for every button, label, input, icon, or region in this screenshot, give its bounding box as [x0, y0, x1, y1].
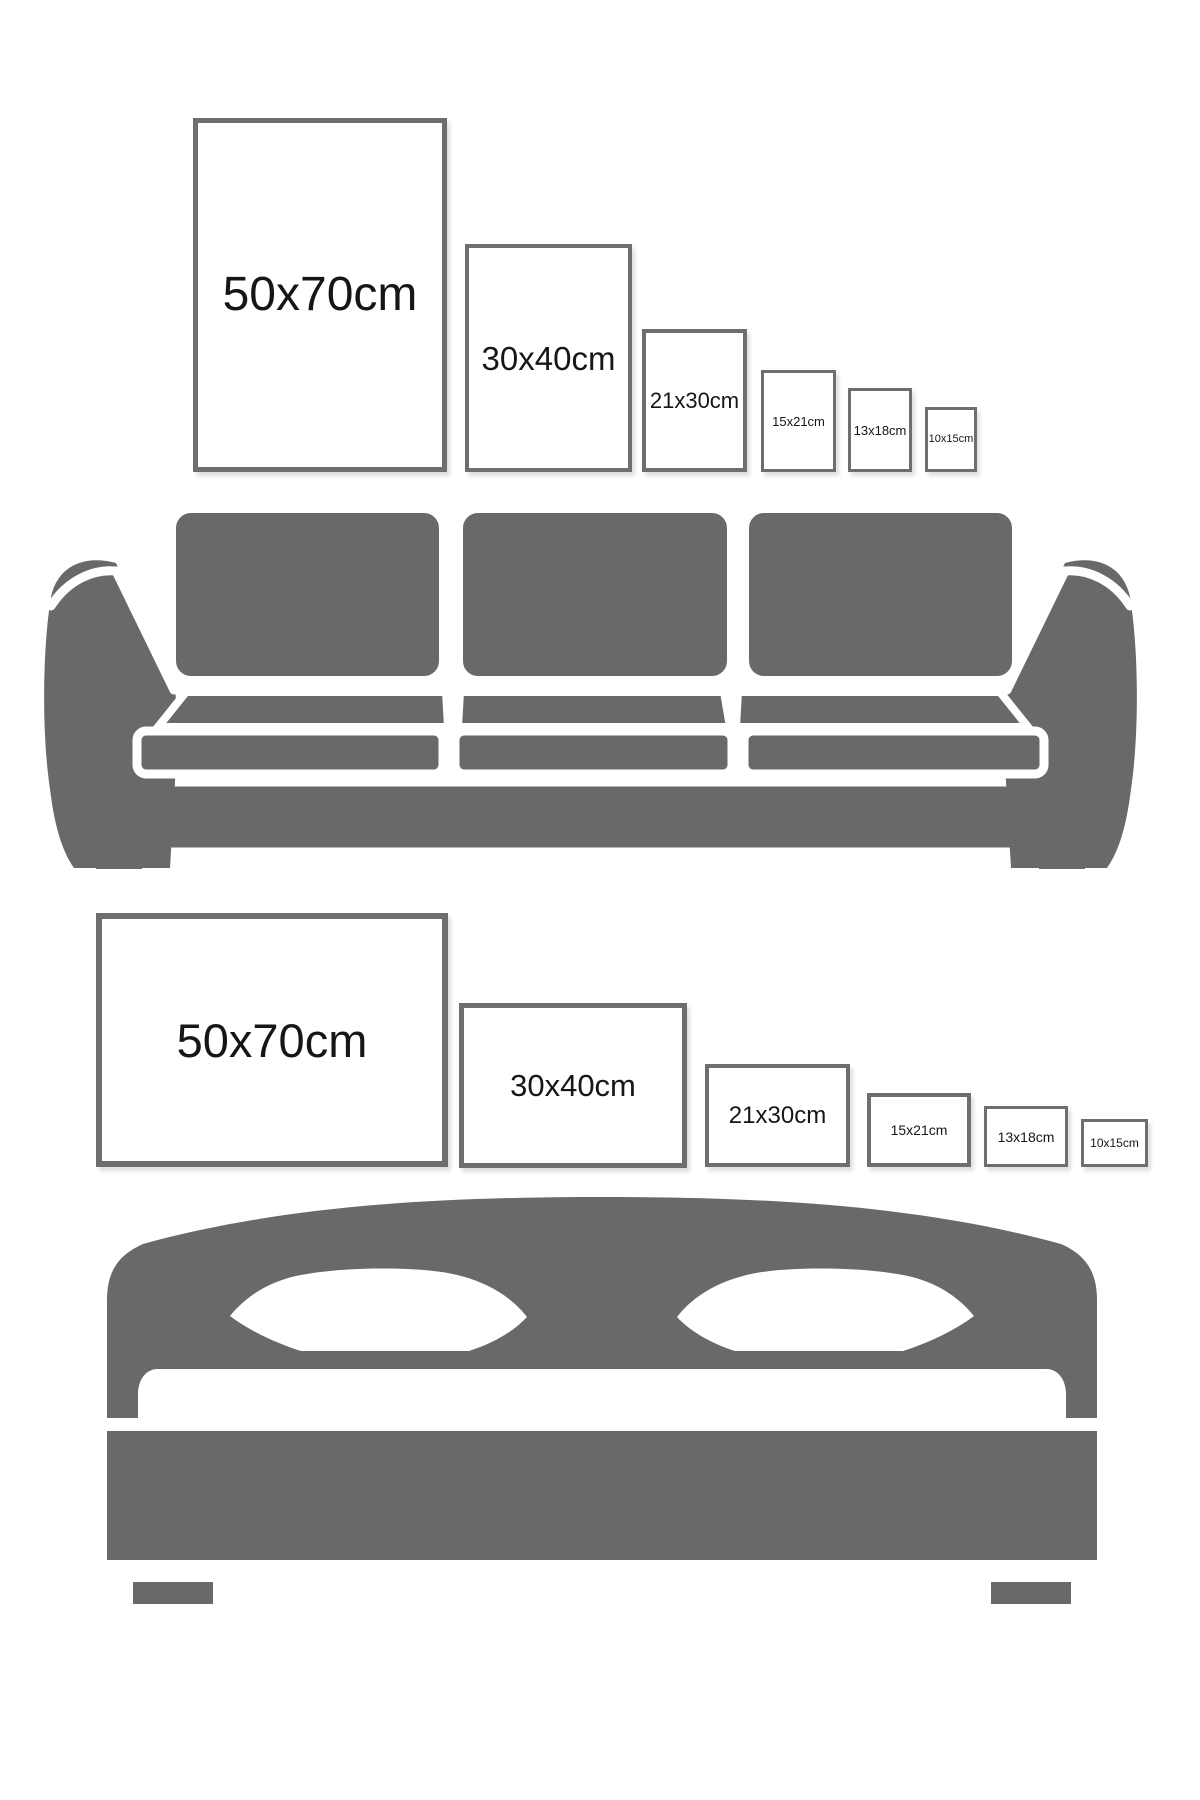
sofa-back-cushion: [458, 508, 732, 681]
sofa-leg: [96, 841, 142, 869]
frame-label: 10x15cm: [929, 434, 974, 445]
sofa-seat-cushion: [744, 731, 1044, 774]
frame-portrait-10x15: 10x15cm: [925, 407, 977, 472]
frame-portrait-13x18: 13x18cm: [848, 388, 912, 472]
frame-label: 15x21cm: [891, 1123, 948, 1137]
frame-label: 21x30cm: [729, 1104, 826, 1128]
frame-label: 50x70cm: [177, 1017, 368, 1064]
frame-label: 10x15cm: [1090, 1137, 1139, 1149]
frame-label: 50x70cm: [223, 271, 418, 319]
frame-landscape-15x21: 15x21cm: [867, 1093, 971, 1167]
sofa-base: [122, 782, 1059, 852]
frame-landscape-50x70: 50x70cm: [96, 913, 448, 1167]
frame-label: 13x18cm: [998, 1130, 1055, 1144]
frame-label: 13x18cm: [854, 424, 907, 437]
frame-portrait-50x70: 50x70cm: [193, 118, 447, 472]
sofa-seat-cushion: [137, 731, 443, 774]
bed-illustration: [80, 1190, 1120, 1620]
frame-landscape-30x40: 30x40cm: [459, 1003, 687, 1168]
frame-landscape-13x18: 13x18cm: [984, 1106, 1068, 1167]
sofa-right-arm: [1003, 560, 1137, 868]
sofa-back-cushion: [171, 508, 444, 681]
frame-label: 15x21cm: [772, 415, 825, 428]
sofa-deck: [736, 692, 1028, 727]
sofa-deck: [158, 692, 448, 727]
poster-size-guide: 50x70cm 30x40cm 21x30cm 15x21cm 13x18cm …: [0, 0, 1200, 1800]
frame-portrait-15x21: 15x21cm: [761, 370, 836, 472]
frame-landscape-10x15: 10x15cm: [1081, 1119, 1148, 1167]
sofa-leg: [1039, 841, 1085, 869]
sofa-left-arm: [44, 560, 178, 868]
frame-label: 21x30cm: [650, 390, 739, 412]
bed-base: [107, 1431, 1097, 1560]
bed-leg: [133, 1582, 213, 1604]
frame-landscape-21x30: 21x30cm: [705, 1064, 850, 1167]
frame-label: 30x40cm: [482, 342, 616, 375]
frame-label: 30x40cm: [510, 1070, 636, 1101]
sofa-illustration: [40, 500, 1140, 872]
frame-portrait-21x30: 21x30cm: [642, 329, 747, 472]
frame-portrait-30x40: 30x40cm: [465, 244, 632, 472]
bed-leg: [991, 1582, 1071, 1604]
sofa-deck: [458, 692, 730, 727]
sofa-back-cushion: [744, 508, 1017, 681]
sofa-seat-cushion: [455, 731, 732, 774]
